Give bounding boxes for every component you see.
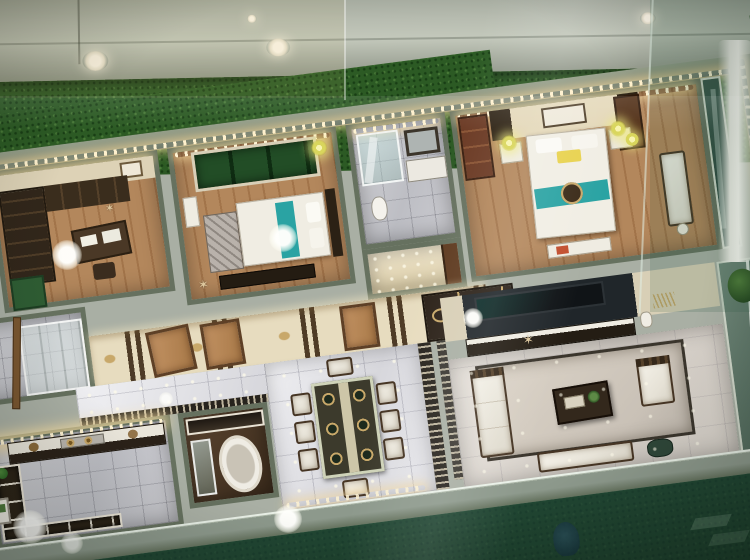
glass-seam-short	[344, 0, 346, 100]
study-window-mat	[10, 275, 48, 311]
dining-chair	[383, 436, 406, 460]
hall-door-1	[145, 324, 198, 378]
dining-chair	[326, 356, 354, 377]
master-lumbar-yellow	[556, 149, 581, 163]
dining-chair	[375, 381, 398, 405]
bath2-screen	[190, 439, 217, 497]
wardrobe-panel	[441, 243, 462, 285]
model-home-photo: ✶ ✶	[0, 0, 750, 560]
pot	[127, 429, 138, 439]
dining-table	[311, 376, 385, 479]
vanity-counter	[405, 155, 448, 182]
toilet	[370, 196, 389, 222]
starfish: ✶	[104, 201, 115, 215]
table-plant	[587, 390, 601, 404]
bedroom2-cabinet	[182, 196, 200, 228]
vanity-mirror	[404, 126, 441, 156]
shower-streak	[365, 137, 378, 184]
master-bed	[526, 127, 616, 239]
starfish: ✶	[197, 277, 210, 293]
bedroom2-bed	[236, 192, 332, 267]
glass-tint-left	[0, 0, 345, 98]
paper	[80, 234, 98, 247]
dining-chair	[297, 448, 320, 472]
pouf-dark	[646, 437, 674, 458]
hall-door-3	[339, 302, 381, 351]
study-chair	[92, 262, 116, 281]
room-dining	[264, 344, 437, 511]
master-bench	[547, 237, 612, 259]
dining-chair	[294, 420, 317, 444]
armchair-right	[636, 359, 675, 407]
study-desk	[71, 220, 133, 264]
room-bedroom-2: ✶	[167, 127, 356, 306]
pot	[28, 442, 39, 452]
utility-shower-screen	[18, 318, 91, 396]
plate	[360, 447, 375, 462]
bath2-counter	[185, 409, 264, 435]
plate	[356, 418, 371, 433]
plate	[321, 392, 336, 407]
plate	[325, 422, 340, 437]
master-pillow	[571, 133, 598, 150]
dining-chair	[379, 409, 402, 433]
shower-enclosure	[356, 129, 404, 186]
bed2-pillow	[305, 201, 321, 223]
room-study: ✶	[0, 150, 176, 313]
bedroom2-window	[191, 136, 321, 192]
bathtub-oval	[213, 430, 269, 497]
bed2-teal-runner	[275, 201, 300, 259]
glass-streak-horizontal	[0, 96, 750, 130]
art-green	[0, 504, 6, 513]
plate	[352, 388, 367, 403]
starfish-console: ✶	[522, 333, 535, 349]
red-box	[556, 245, 569, 254]
room-bathroom	[345, 112, 461, 250]
dining-chair	[290, 392, 313, 416]
console-vase	[639, 311, 653, 328]
paper	[101, 228, 121, 243]
room-bathroom-2	[178, 402, 280, 509]
hall-door-2	[199, 318, 246, 370]
case-corner-pillar	[718, 40, 750, 262]
bed2-pillow	[309, 227, 325, 249]
plate	[329, 451, 344, 466]
utility-door-bar	[12, 317, 21, 409]
tray	[564, 394, 586, 409]
